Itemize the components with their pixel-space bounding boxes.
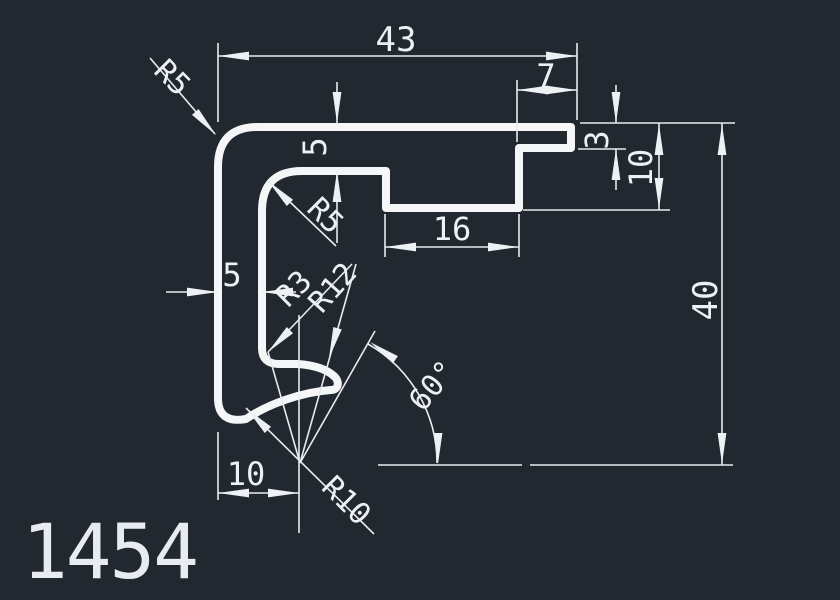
dim-text-notch-width: 16 (433, 210, 472, 248)
dim-text-overall-width: 43 (376, 20, 417, 60)
dim-text-hook-offset: 10 (227, 455, 266, 493)
dim-text-left-wall-gap: 5 (222, 256, 241, 294)
dim-text-lip-thickness: 3 (578, 130, 616, 149)
dim-text-arm-depth: 10 (622, 149, 660, 188)
cad-canvas[interactable]: 43 7 5 R5 R5 5 R3 (0, 0, 840, 600)
part-number-label: 1454 (22, 507, 197, 596)
dim-text-overall-height: 40 (686, 280, 726, 321)
dim-text-lip-width: 7 (536, 57, 555, 95)
cad-drawing: 43 7 5 R5 R5 5 R3 (0, 0, 840, 600)
dim-text-top-wall: 5 (296, 137, 334, 156)
